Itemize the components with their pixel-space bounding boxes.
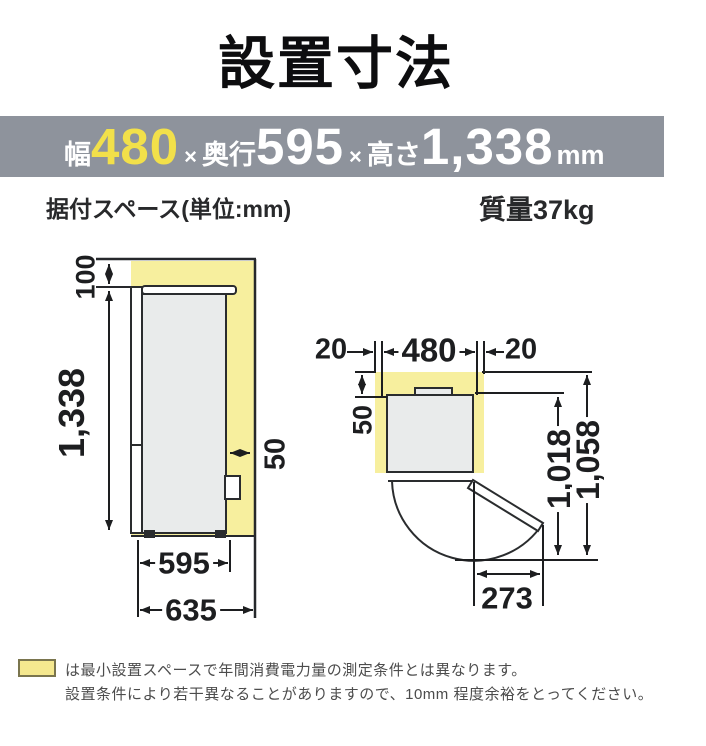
fridge-top-cap <box>142 286 236 294</box>
min-space-swatch <box>18 659 56 677</box>
rear-notch <box>225 476 240 499</box>
side-height-label: 1,338 <box>54 368 90 458</box>
fridge-side-body <box>142 294 226 533</box>
top-door-swing-width-label: 273 <box>481 583 533 614</box>
top-width-label: 480 <box>398 334 459 367</box>
note-line-1: は最小設置スペースで年間消費電力量の測定条件とは異なります。 <box>65 659 527 680</box>
dimension-diagrams <box>0 0 706 746</box>
top-left-clearance-label: 20 <box>315 336 347 365</box>
fridge-top-body <box>387 395 473 472</box>
side-top-clearance-label: 100 <box>73 254 100 299</box>
top-total-depth-label: 1,058 <box>572 417 604 503</box>
side-total-depth-label: 635 <box>162 595 220 626</box>
top-rear-clearance-label: 50 <box>350 405 377 435</box>
door-open-panel <box>468 480 543 531</box>
top-right-clearance-label: 20 <box>505 336 537 365</box>
note-line-2: 設置条件により若干異なることがありますので、10mm 程度余裕をとってください。 <box>65 683 653 704</box>
side-rear-clearance-label: 50 <box>262 438 291 470</box>
installation-dimensions-page: 設置寸法 幅 480 × 奥行 595 × 高さ 1,338 mm 据付スペース… <box>0 0 706 746</box>
fridge-side-door <box>131 287 142 533</box>
front-foot <box>144 530 155 538</box>
side-depth-label: 595 <box>155 548 213 579</box>
rear-foot <box>215 530 226 538</box>
